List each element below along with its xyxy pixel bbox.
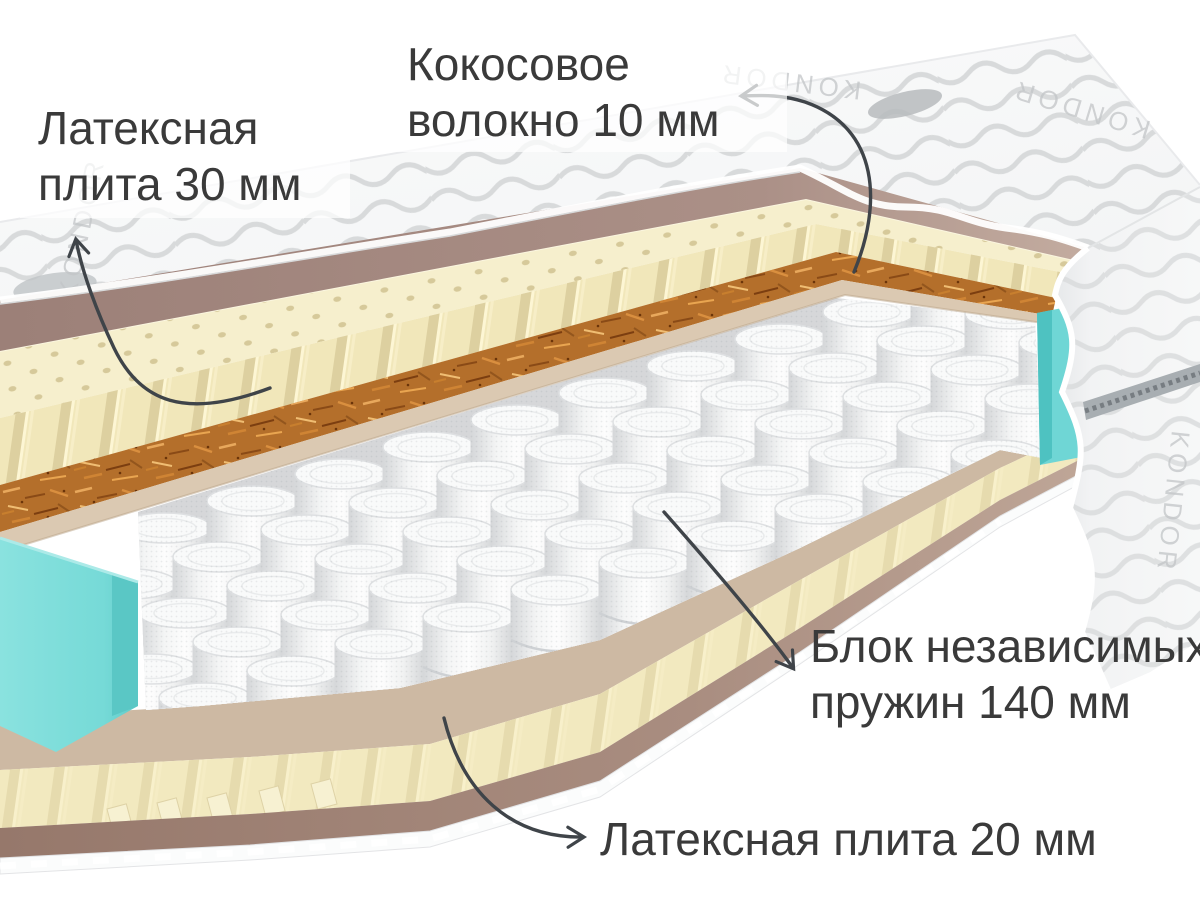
mattress-cutaway-diagram: KONDOR KONDOR KONDOR [0, 0, 1200, 900]
label-latex-bottom: Латексная плита 20 мм [600, 813, 1097, 865]
teal-left-side-face [112, 574, 138, 716]
